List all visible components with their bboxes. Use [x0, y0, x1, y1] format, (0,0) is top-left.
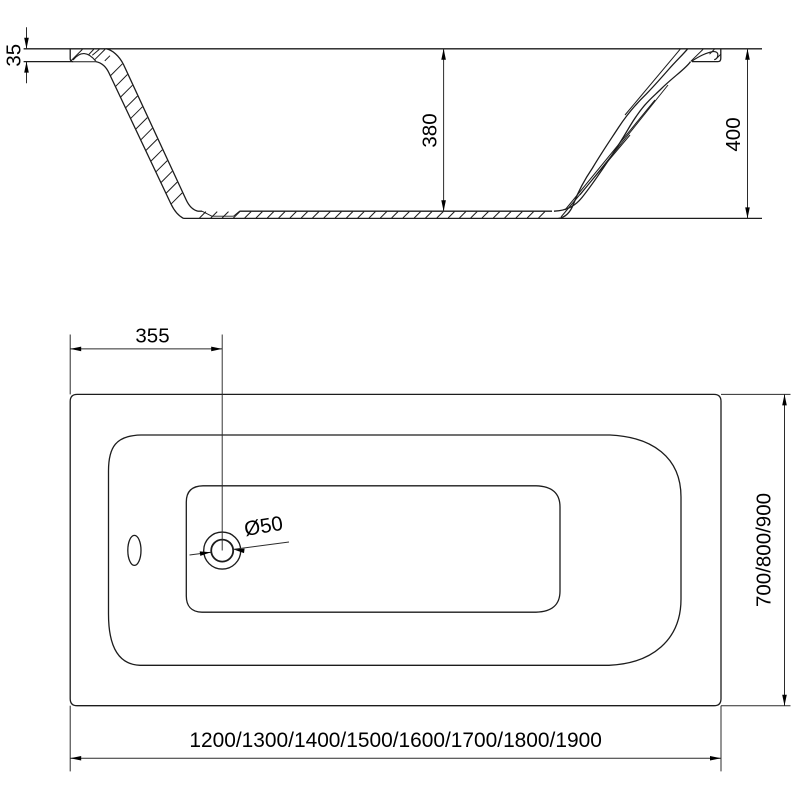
svg-text:400: 400	[722, 117, 745, 151]
svg-text:700/800/900: 700/800/900	[753, 493, 776, 607]
svg-text:380: 380	[419, 113, 442, 147]
svg-text:1200/1300/1400/1500/1600/1700/: 1200/1300/1400/1500/1600/1700/1800/1900	[189, 729, 601, 752]
svg-text:355: 355	[135, 325, 169, 348]
svg-text:35: 35	[3, 44, 26, 67]
